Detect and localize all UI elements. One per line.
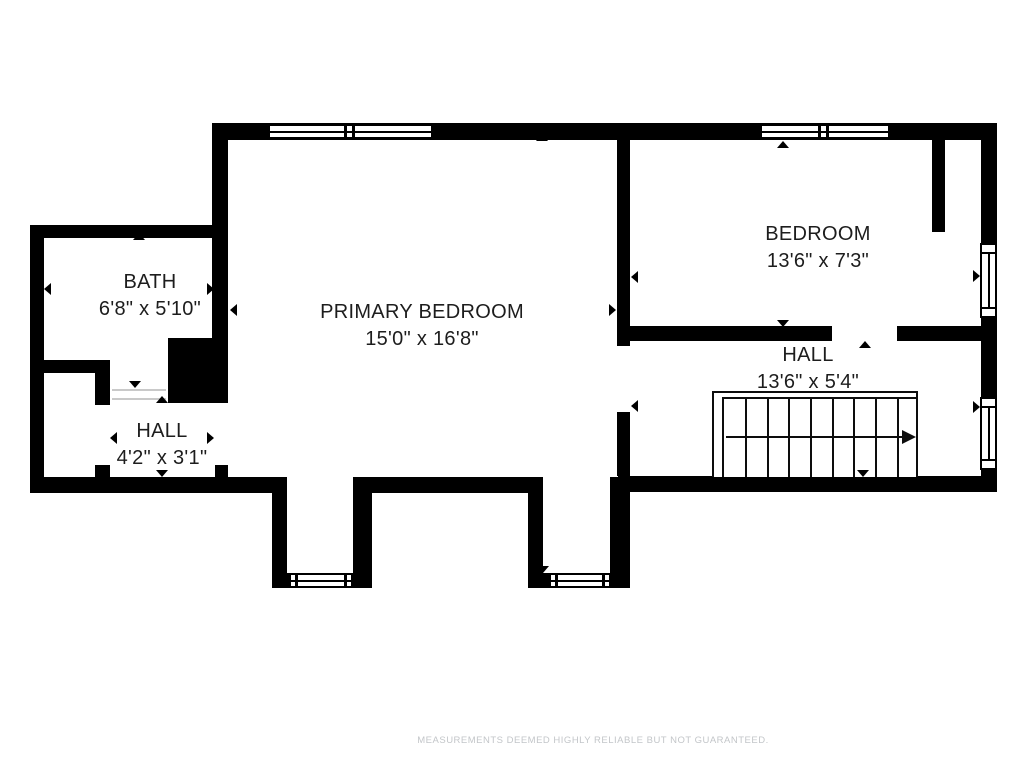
window-mullion [826,125,829,138]
measure-arrow-icon [777,141,789,148]
stair-tread [722,397,724,477]
window-mullion [352,125,355,138]
measure-arrow-icon [207,283,214,295]
window [289,573,353,588]
measure-arrow-icon [609,304,616,316]
window-post [344,574,347,587]
room-label-hall-upper: HALL 13'6" x 5'4" [757,342,859,396]
stair-stringer [722,397,916,399]
room-label-hall-lower: HALL 4'2" x 3'1" [117,418,208,472]
wall [932,138,945,232]
room-dimensions: 4'2" x 3'1" [117,445,208,472]
window-glass-line [988,407,990,460]
measure-arrow-icon [207,432,214,444]
window [268,124,433,139]
wall [618,476,997,492]
measure-arrow-icon [973,401,980,413]
window [760,124,890,139]
window [549,573,611,588]
measure-arrow-icon [44,283,51,295]
measure-arrow-icon [631,271,638,283]
room-name: BEDROOM [765,221,870,248]
window [980,397,997,470]
window-post [295,574,298,587]
window-glass-line [270,131,431,133]
measure-arrow-icon [859,341,871,348]
window-glass-line [762,131,888,133]
window-glass-line [988,253,990,308]
measure-arrow-icon [230,304,237,316]
disclaimer-text: MEASUREMENTS DEEMED HIGHLY RELIABLE BUT … [417,735,768,746]
room-name: HALL [757,342,859,369]
wall [617,138,630,346]
room-dimensions: 6'8" x 5'10" [99,296,201,323]
wall [617,412,630,476]
stair-direction-arrow-icon [902,430,916,444]
wall [897,326,982,341]
wall [630,326,832,341]
door-threshold [112,389,166,391]
measure-arrow-icon [156,396,168,403]
window-glass-line [551,580,609,582]
room-dimensions: 13'6" x 5'4" [757,369,859,396]
wall [30,477,287,493]
room-dimensions: 15'0" x 16'8" [320,326,524,353]
room-dimensions: 13'6" x 7'3" [765,248,870,275]
window-glass-line [291,580,351,582]
measure-arrow-icon [133,233,145,240]
window-post [602,574,605,587]
wall [610,477,630,588]
window-mullion [344,125,347,138]
room-name: PRIMARY BEDROOM [320,299,524,326]
wall [272,477,287,588]
measure-arrow-icon [631,400,638,412]
room-label-primary-bedroom: PRIMARY BEDROOM 15'0" x 16'8" [320,299,524,353]
wall [95,360,110,405]
wall [30,225,228,238]
room-label-bath: BATH 6'8" x 5'10" [99,269,201,323]
floor-plan: BATH 6'8" x 5'10" PRIMARY BEDROOM 15'0" … [0,0,1024,768]
chimney-chase [168,338,228,403]
window-post [555,574,558,587]
window [980,243,997,318]
measure-arrow-icon [537,566,549,573]
measure-arrow-icon [536,134,548,141]
room-name: BATH [99,269,201,296]
staircase [712,391,918,477]
room-label-bedroom: BEDROOM 13'6" x 7'3" [765,221,870,275]
room-name: HALL [117,418,208,445]
stair-direction-line [726,436,904,438]
measure-arrow-icon [777,320,789,327]
measure-arrow-icon [129,381,141,388]
wall [30,225,44,493]
wall [353,477,543,493]
measure-arrow-icon [973,270,980,282]
window-mullion [818,125,821,138]
measure-arrow-icon [857,470,869,477]
